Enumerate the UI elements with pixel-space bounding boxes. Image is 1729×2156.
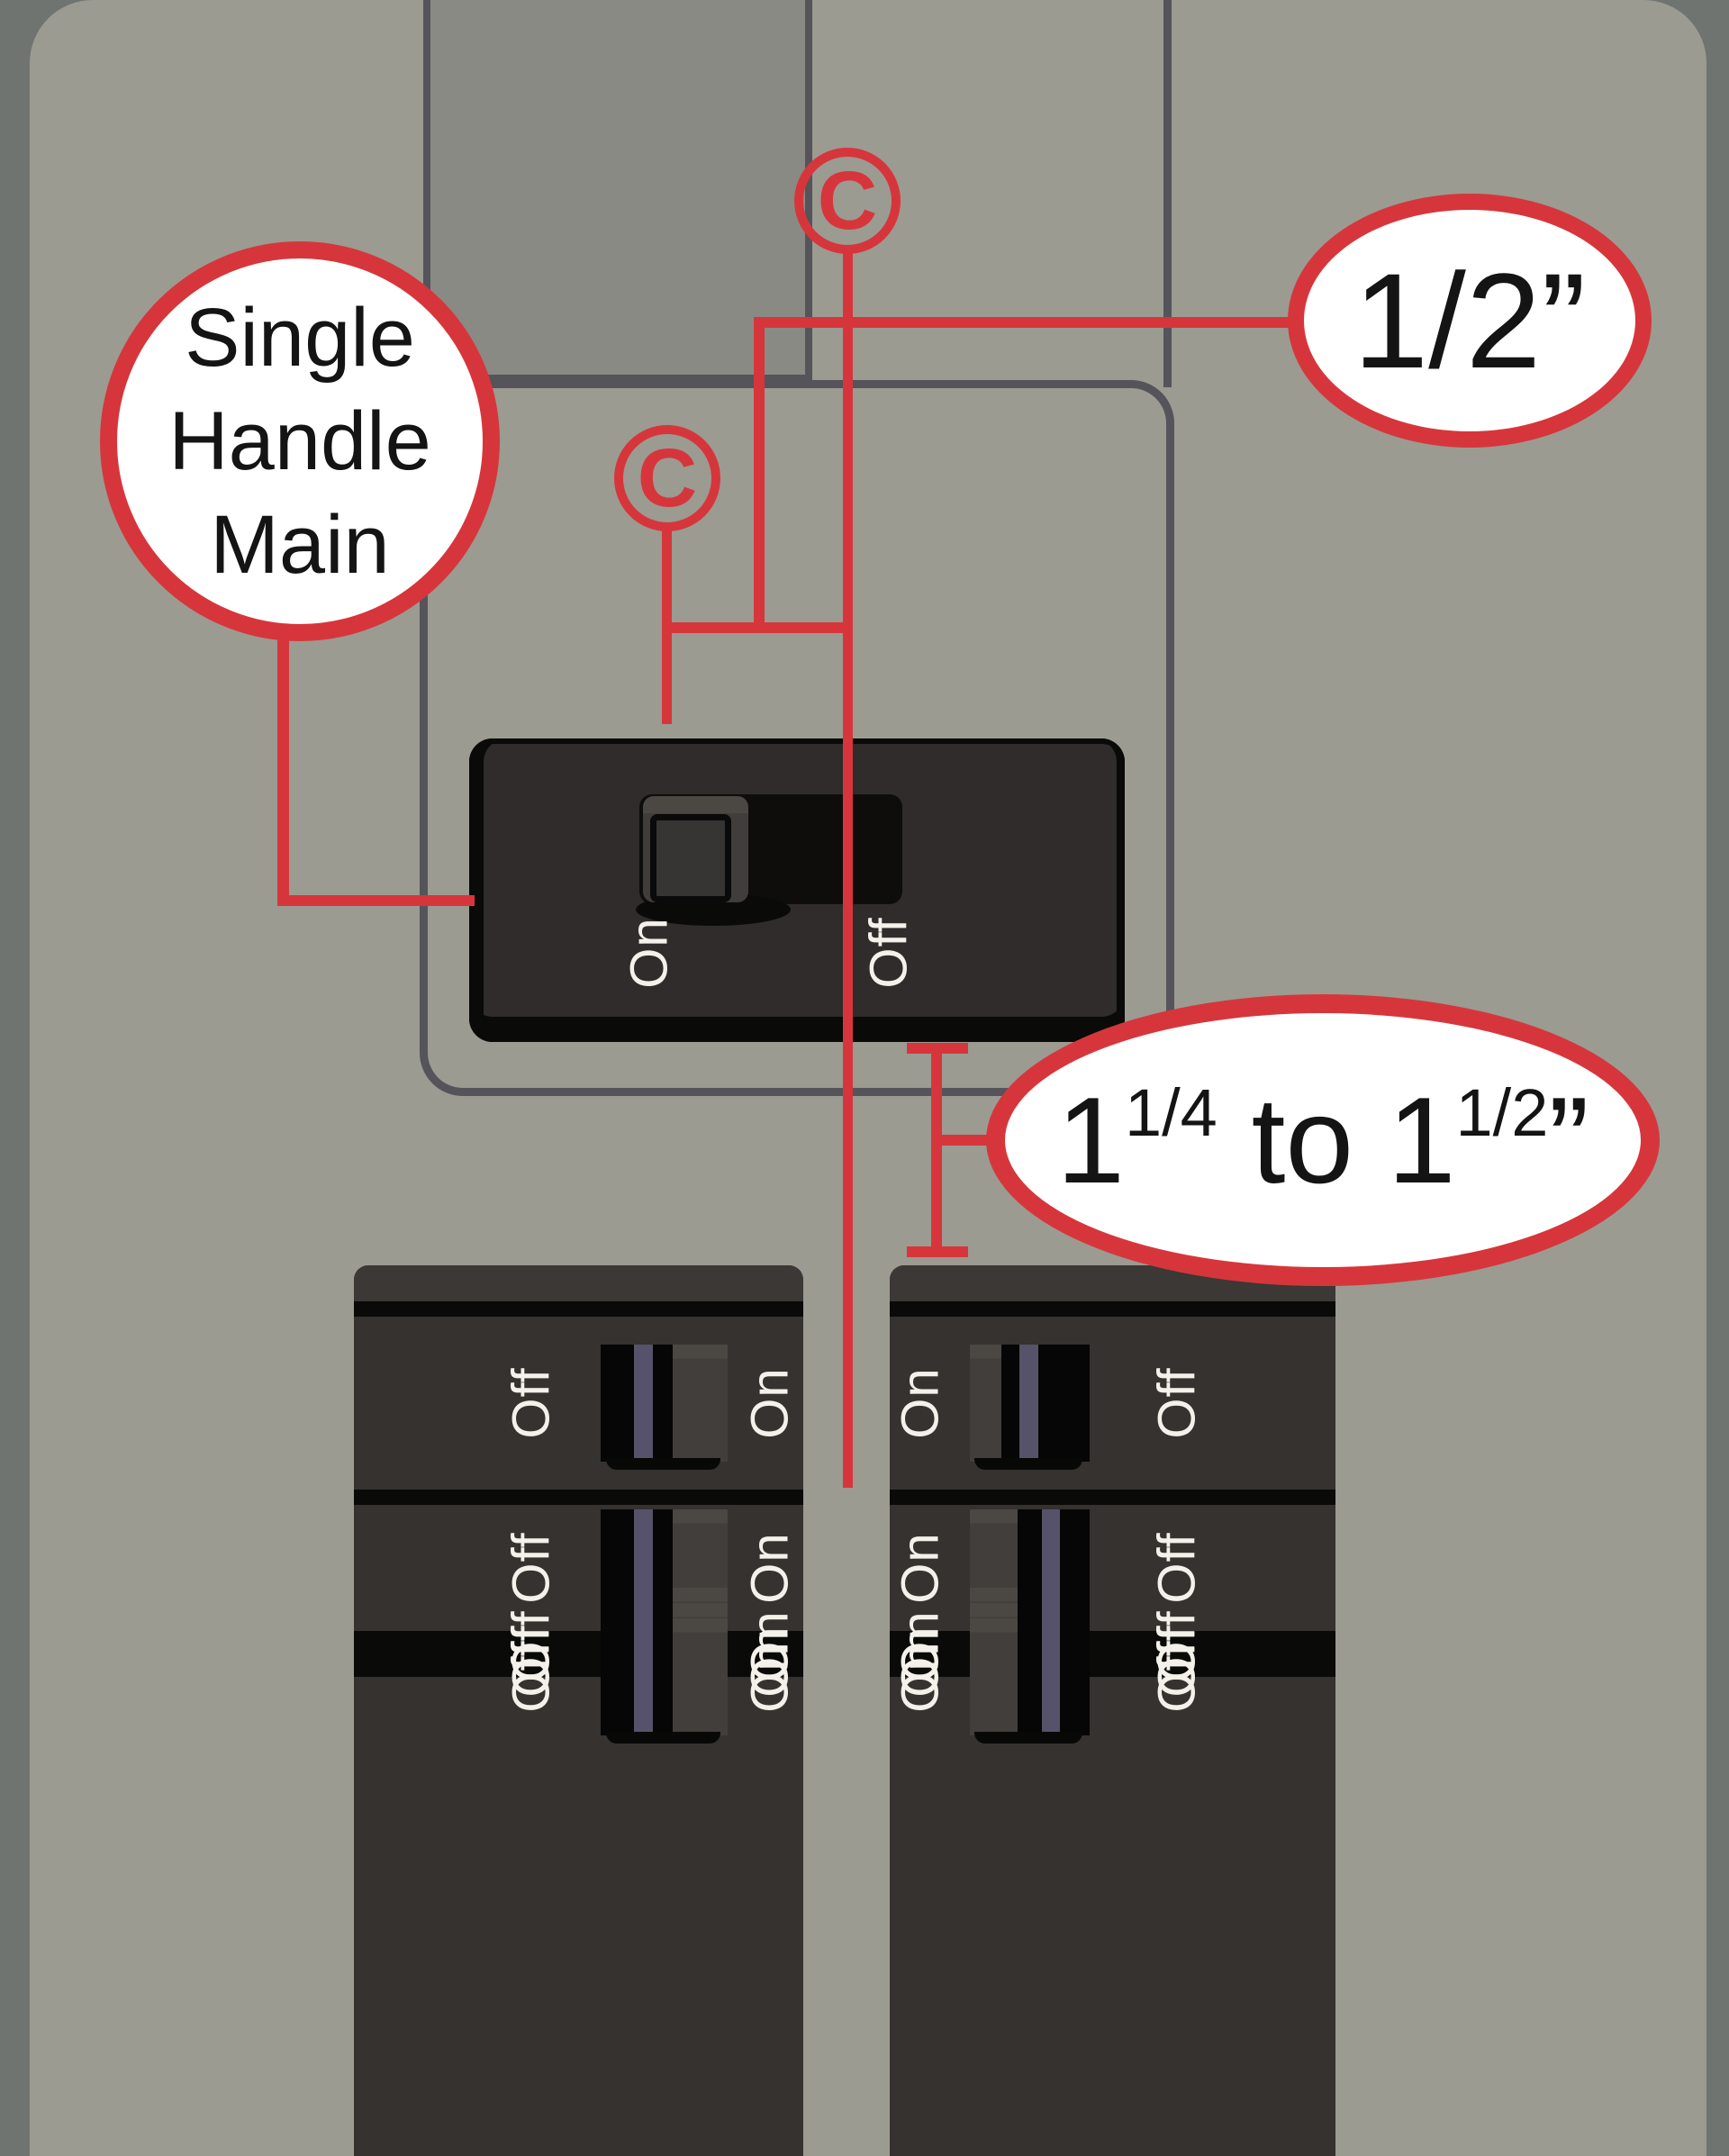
single-handle-main-callout: Single Handle Main [100,241,500,641]
breaker-row: Off On [354,1317,803,1490]
breaker-toggle [970,1345,1090,1462]
centerline-c-glyph: C [638,437,697,520]
breaker-left-label: On [891,1532,951,1603]
toggle-stripe [1019,1345,1038,1462]
toggle-stripe [634,1345,653,1462]
callout-leader-v [277,630,289,906]
callout-line3: Main [210,494,389,597]
column-band [354,1662,803,1677]
main-breaker-off-label: Off [859,917,919,988]
breaker-right-label: Off [1147,1532,1208,1603]
toggle-segment [653,1618,674,1735]
column-band [890,1646,1335,1662]
toggle-face [673,1618,728,1735]
breaker-toggle [601,1345,728,1462]
half-inch-leader-h [759,317,1290,328]
breaker-row: Off On [354,1505,803,1631]
dimension-tbar-top [907,1043,968,1054]
toggle-segment [1018,1618,1042,1735]
dimension-line [931,1045,942,1254]
breaker-right-label: On [740,1532,801,1603]
breaker-right-label: On [740,1367,801,1438]
column-band [890,1301,1335,1317]
right-breaker-column: On Off On Off [890,1265,1335,2156]
toggle-face [970,1618,1018,1735]
left-column-header [354,1265,803,1301]
breaker-left-label: Off [502,1367,562,1438]
gap-range-value: 11/4 to 11/2” [1056,1070,1589,1210]
gap-range-callout: 11/4 to 11/2” [986,994,1660,1286]
main-breaker-on-label: On [620,917,680,988]
toggle-segment [653,1345,674,1462]
breaker-left-label: On [891,1367,951,1438]
main-breaker-toggle-handle [643,796,748,902]
callout-line2: Handle [168,390,431,494]
toggle-face [673,1345,728,1462]
dimension-tbar-bottom [907,1246,968,1257]
breaker-right-label: Off [1147,1367,1208,1438]
column-band [354,1490,803,1505]
centerline-symbol-mid: C [614,425,720,531]
toggle-face [970,1345,1001,1462]
centerline-symbol-top: C [794,148,901,254]
callout-line1: Single [185,286,415,390]
breaker-right-label: On [740,1641,801,1712]
half-inch-leader-v [754,317,765,633]
breaker-left-label: On [891,1641,951,1712]
toggle-segment [601,1618,634,1735]
column-band [890,1631,1335,1646]
electrical-panel-diagram: On Off Off On Off [0,0,1729,2156]
half-inch-value: 1/2” [1353,243,1586,399]
breaker-row: On Off [890,1505,1335,1631]
column-band [890,1662,1335,1677]
column-band [354,1301,803,1317]
column-band [890,1490,1335,1505]
half-inch-callout: 1/2” [1288,194,1652,448]
toggle-segment [1001,1345,1019,1462]
breaker-row: On Off [890,1317,1335,1490]
column-band [354,1646,803,1662]
toggle-segment [601,1345,634,1462]
breaker-left-label: Off [502,1532,562,1603]
toggle-segment [1060,1618,1090,1735]
toggle-stripe [1042,1618,1060,1735]
centerline-top-stem [843,253,853,1488]
main-breaker-toggle-face [650,814,731,902]
main-breaker: On Off [469,738,1125,1042]
centerline-connector [662,622,853,633]
callout-leader-h [277,895,475,906]
dimension-connector [937,1135,992,1146]
cover-seam [1163,0,1172,387]
toggle-segment [1038,1345,1090,1462]
toggle-stripe [634,1618,653,1735]
breaker-toggle [970,1618,1090,1735]
breaker-left-label: Off [502,1641,562,1712]
left-breaker-column: Off On Off On [354,1265,803,2156]
breaker-toggle [601,1618,728,1735]
column-band [354,1631,803,1646]
breaker-right-label: Off [1147,1641,1208,1712]
centerline-c-glyph: C [818,159,877,242]
